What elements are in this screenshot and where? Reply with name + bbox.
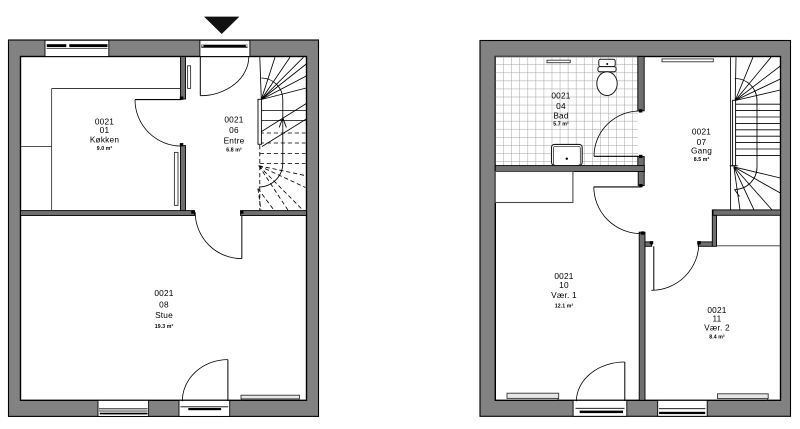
svg-text:10: 10 [559, 280, 569, 290]
svg-text:08: 08 [159, 300, 169, 310]
svg-text:8.4 m²: 8.4 m² [709, 334, 725, 340]
svg-text:0021: 0021 [224, 115, 243, 125]
svg-text:Bad: Bad [553, 110, 569, 120]
svg-text:Køkken: Køkken [90, 134, 120, 144]
svg-text:9.0 m²: 9.0 m² [97, 146, 113, 152]
svg-text:0021: 0021 [692, 127, 711, 137]
svg-text:Stue: Stue [155, 310, 173, 320]
svg-text:6.8 m²: 6.8 m² [226, 148, 242, 154]
svg-text:Vær. 1: Vær. 1 [551, 290, 577, 300]
svg-text:0021: 0021 [154, 288, 173, 298]
svg-text:06: 06 [229, 125, 239, 135]
svg-text:8.5 m²: 8.5 m² [694, 157, 710, 163]
svg-text:5.7 m²: 5.7 m² [553, 121, 569, 127]
svg-text:Vær. 2: Vær. 2 [704, 322, 730, 332]
svg-text:19.3 m²: 19.3 m² [155, 324, 174, 330]
svg-text:12.1 m²: 12.1 m² [555, 303, 574, 309]
svg-text:Gang: Gang [691, 145, 712, 155]
svg-text:0021: 0021 [551, 90, 570, 100]
svg-text:Entre: Entre [224, 136, 245, 146]
